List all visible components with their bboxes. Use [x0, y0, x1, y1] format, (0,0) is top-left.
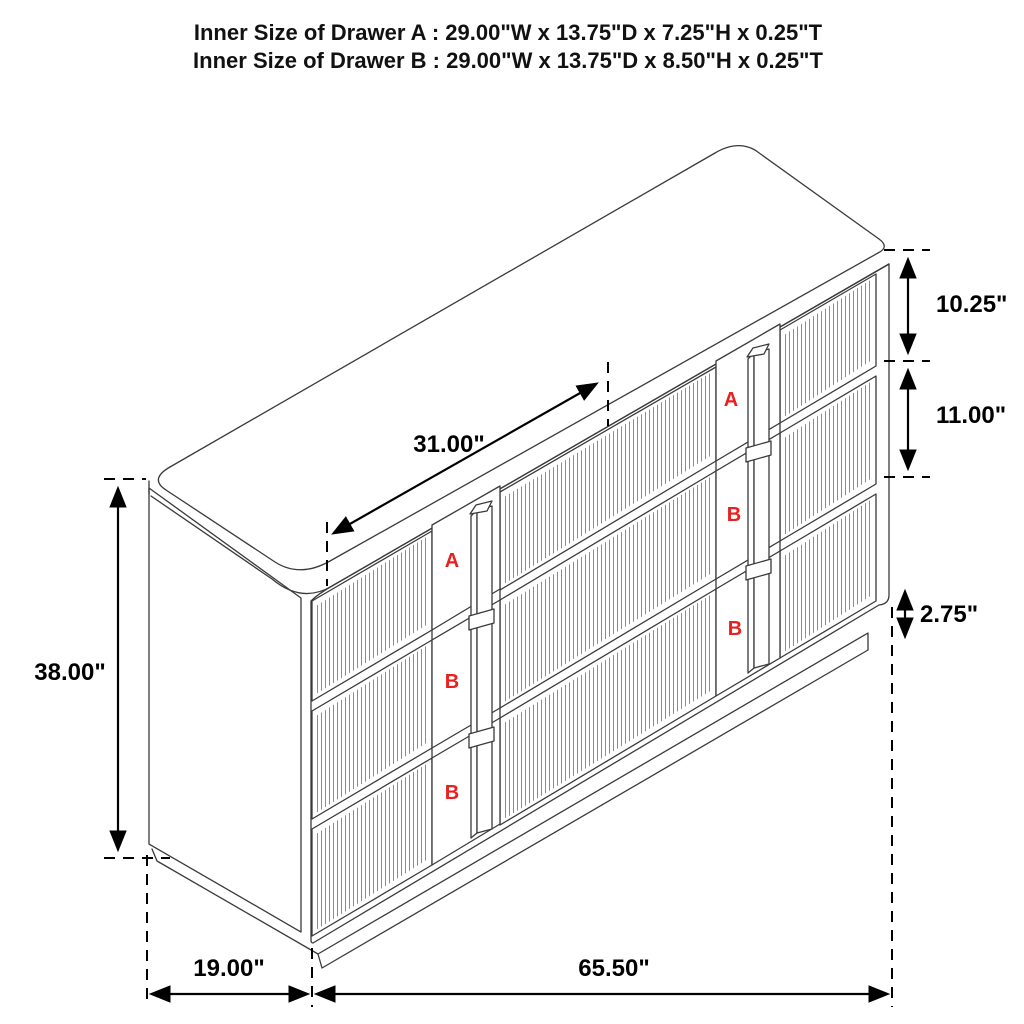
header-line-1: Inner Size of Drawer A : 29.00"W x 13.75… [194, 20, 823, 45]
dim-overall-height: 38.00" [34, 659, 105, 686]
furniture-dimension-diagram: Inner Size of Drawer A : 29.00"W x 13.75… [0, 0, 1024, 1024]
drawer-label-right-b1: B [727, 504, 741, 526]
header: Inner Size of Drawer A : 29.00"W x 13.75… [193, 20, 823, 73]
handle-strip-left [432, 486, 500, 865]
dim-overall-depth: 19.00" [193, 955, 264, 982]
cabinet-drawing: A B B A B B [149, 146, 889, 968]
drawer-column-right [780, 274, 876, 658]
drawer-handle [477, 506, 492, 833]
drawer-label-left-a: A [445, 550, 459, 572]
dim-base-height: 2.75" [920, 601, 978, 628]
drawer-label-left-b1: B [445, 671, 459, 693]
header-line-2: Inner Size of Drawer B : 29.00"W x 13.75… [193, 48, 823, 73]
drawer-handle [754, 349, 769, 668]
drawer-column-left [312, 531, 432, 936]
drawer-handle-side [748, 353, 754, 673]
drawer-label-left-b2: B [445, 782, 459, 804]
dim-top-drawer-height: 10.25" [936, 291, 1007, 318]
dim-overall-width: 65.50" [578, 955, 649, 982]
handle-strip-right [716, 324, 780, 696]
drawer-label-right-b2: B [728, 618, 742, 640]
drawer-label-right-a: A [724, 389, 738, 411]
dim-drawer-front-width: 31.00" [413, 431, 484, 458]
dim-middle-drawer-height: 11.00" [936, 402, 1006, 429]
drawer-handle-side [471, 510, 477, 838]
